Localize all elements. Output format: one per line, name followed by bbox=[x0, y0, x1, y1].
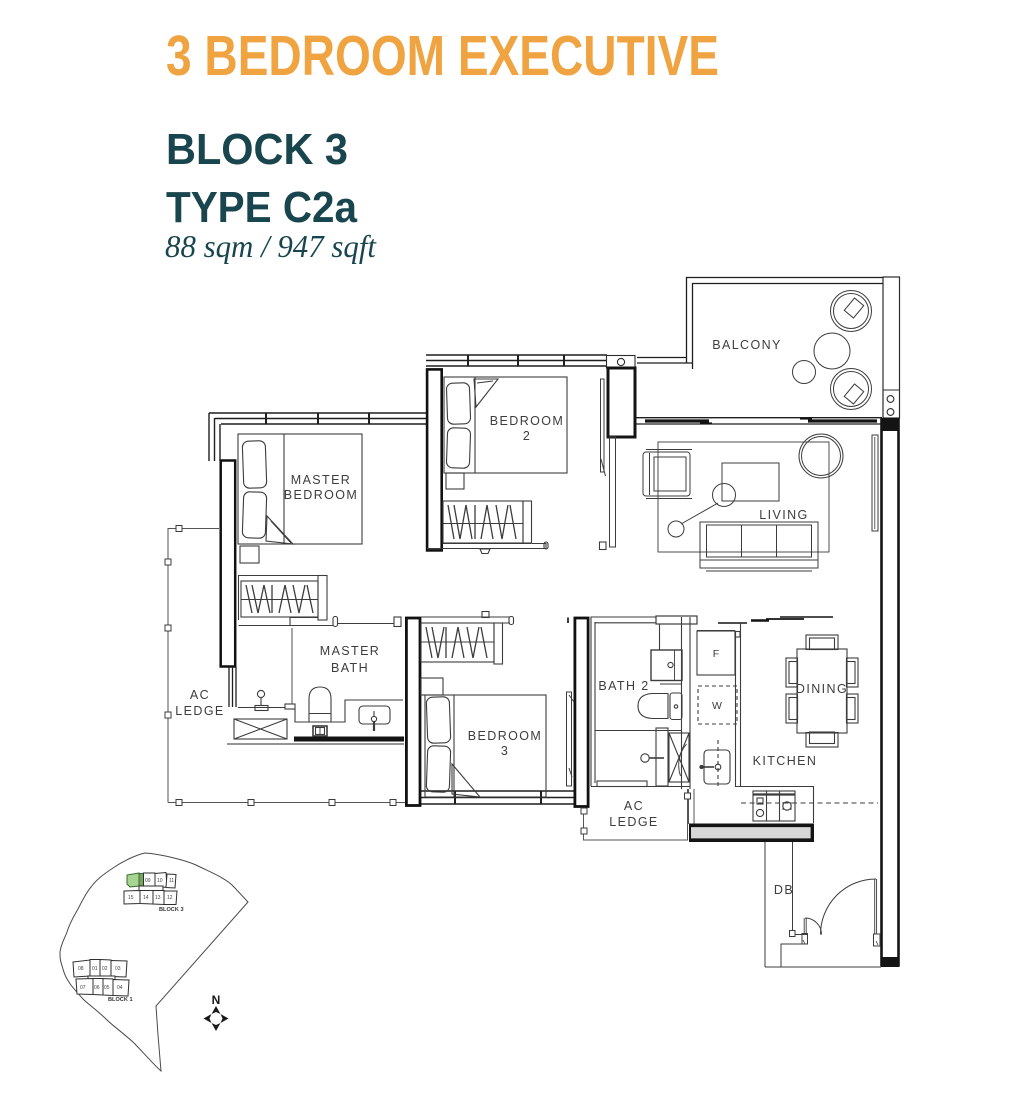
svg-text:04: 04 bbox=[117, 985, 123, 991]
svg-text:08: 08 bbox=[78, 966, 84, 972]
svg-text:15: 15 bbox=[128, 895, 134, 901]
svg-text:BALCONY: BALCONY bbox=[712, 338, 782, 352]
svg-text:LEDGE: LEDGE bbox=[609, 815, 658, 829]
svg-text:F: F bbox=[713, 648, 719, 660]
svg-text:AC: AC bbox=[624, 799, 644, 813]
svg-text:05: 05 bbox=[104, 985, 110, 991]
svg-text:14: 14 bbox=[143, 895, 149, 901]
svg-text:BEDROOM: BEDROOM bbox=[468, 729, 542, 743]
svg-text:09: 09 bbox=[145, 878, 151, 884]
svg-text:DINING: DINING bbox=[796, 682, 848, 696]
svg-text:BATH 2: BATH 2 bbox=[598, 679, 649, 693]
svg-text:01: 01 bbox=[92, 966, 98, 972]
svg-text:AC: AC bbox=[190, 688, 210, 702]
svg-text:06: 06 bbox=[94, 985, 100, 991]
svg-text:13: 13 bbox=[155, 895, 161, 901]
svg-text:MASTER: MASTER bbox=[291, 473, 352, 487]
svg-text:2: 2 bbox=[523, 429, 531, 443]
svg-text:11: 11 bbox=[169, 878, 174, 884]
svg-text:BLOCK 3: BLOCK 3 bbox=[159, 907, 184, 913]
svg-text:BEDROOM: BEDROOM bbox=[284, 488, 358, 502]
svg-text:07: 07 bbox=[80, 985, 86, 991]
svg-text:MASTER: MASTER bbox=[320, 644, 381, 658]
svg-text:03: 03 bbox=[115, 966, 121, 972]
svg-text:KITCHEN: KITCHEN bbox=[753, 754, 818, 768]
svg-text:LIVING: LIVING bbox=[759, 508, 808, 522]
svg-text:TYPE C2a: TYPE C2a bbox=[166, 183, 357, 232]
svg-text:88 sqm / 947 sqft: 88 sqm / 947 sqft bbox=[165, 228, 377, 264]
svg-text:3 BEDROOM EXECUTIVE: 3 BEDROOM EXECUTIVE bbox=[166, 24, 719, 87]
svg-text:N: N bbox=[212, 993, 221, 1007]
svg-text:02: 02 bbox=[102, 966, 108, 972]
svg-text:3: 3 bbox=[501, 744, 509, 758]
svg-text:DB: DB bbox=[774, 883, 794, 897]
svg-text:BLOCK 1: BLOCK 1 bbox=[108, 997, 133, 1003]
svg-text:12: 12 bbox=[167, 895, 173, 901]
svg-text:BLOCK 3: BLOCK 3 bbox=[166, 125, 348, 174]
svg-text:W: W bbox=[712, 700, 722, 712]
svg-text:10: 10 bbox=[157, 878, 163, 884]
svg-text:BATH: BATH bbox=[331, 661, 369, 675]
svg-text:LEDGE: LEDGE bbox=[175, 704, 224, 718]
svg-text:BEDROOM: BEDROOM bbox=[490, 414, 564, 428]
